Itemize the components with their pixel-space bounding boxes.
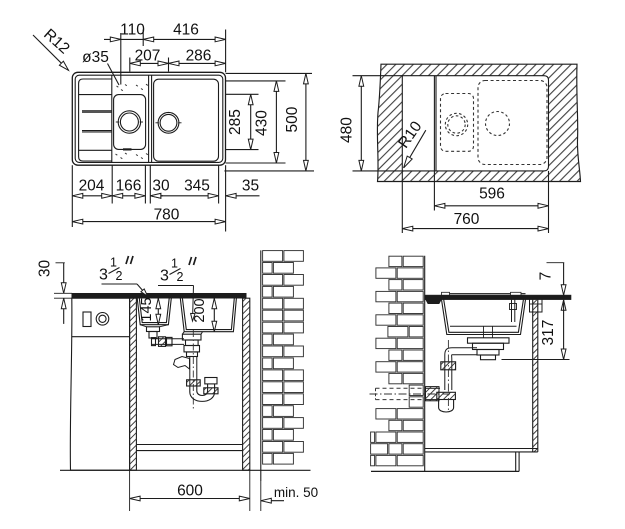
- svg-text:430: 430: [254, 110, 271, 136]
- svg-text:3: 3: [99, 267, 108, 284]
- svg-text:35: 35: [242, 178, 259, 195]
- svg-text:204: 204: [79, 178, 105, 195]
- svg-text:600: 600: [177, 483, 203, 500]
- svg-text:1: 1: [110, 256, 117, 270]
- svg-text:317: 317: [540, 320, 557, 346]
- svg-text:166: 166: [116, 178, 142, 195]
- svg-text:760: 760: [454, 211, 480, 228]
- svg-text:416: 416: [173, 22, 199, 39]
- svg-text:7: 7: [538, 272, 555, 281]
- svg-text:200: 200: [192, 298, 208, 322]
- svg-text:596: 596: [479, 186, 505, 203]
- svg-text:345: 345: [184, 178, 210, 195]
- svg-text:30: 30: [37, 260, 54, 278]
- svg-text:480: 480: [339, 117, 356, 143]
- svg-text:2: 2: [116, 269, 123, 283]
- svg-text:207: 207: [135, 48, 161, 65]
- svg-text:145: 145: [139, 297, 155, 321]
- svg-text:780: 780: [154, 207, 180, 224]
- svg-text:286: 286: [186, 48, 212, 65]
- svg-text:30: 30: [152, 178, 170, 195]
- svg-text:500: 500: [284, 106, 301, 132]
- svg-text:ø35: ø35: [82, 49, 109, 66]
- svg-text:2: 2: [177, 270, 184, 284]
- svg-text:285: 285: [227, 109, 244, 135]
- svg-text:min. 50: min. 50: [274, 485, 318, 500]
- svg-text:3: 3: [160, 268, 169, 285]
- svg-text:110: 110: [120, 22, 145, 39]
- svg-text:1: 1: [171, 257, 178, 271]
